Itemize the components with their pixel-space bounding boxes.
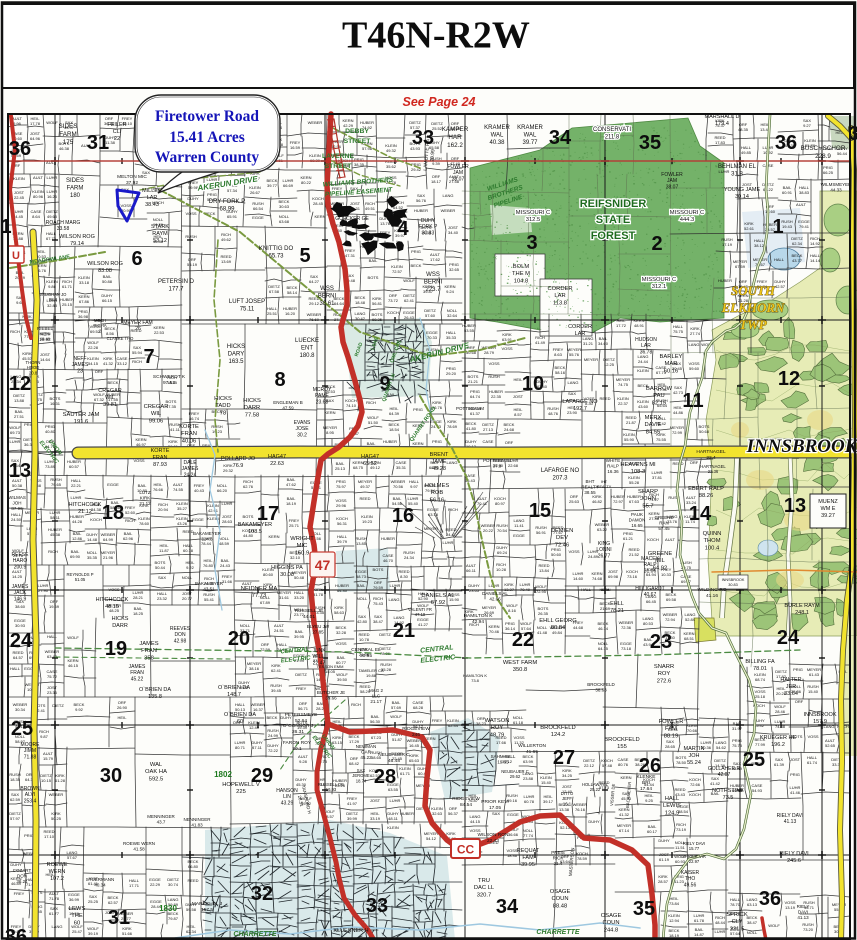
svg-text:LUFT JOSEP: LUFT JOSEP xyxy=(229,299,265,305)
svg-text:15.40: 15.40 xyxy=(808,689,819,694)
svg-text:57.98: 57.98 xyxy=(362,146,373,151)
svg-text:13: 13 xyxy=(784,495,806,517)
svg-text:8.57: 8.57 xyxy=(514,412,523,417)
svg-text:EGGE: EGGE xyxy=(107,482,119,487)
svg-text:HEIL: HEIL xyxy=(118,715,128,720)
svg-text:KLEIN: KLEIN xyxy=(13,176,25,181)
svg-text:75.75: 75.75 xyxy=(673,329,684,334)
svg-text:77.58: 77.58 xyxy=(245,413,260,419)
svg-text:74.55: 74.55 xyxy=(173,487,184,492)
svg-text:NEUBAUER C: NEUBAUER C xyxy=(378,752,410,758)
svg-text:68.28: 68.28 xyxy=(413,705,424,710)
svg-text:56.76: 56.76 xyxy=(416,198,427,203)
svg-text:100.4: 100.4 xyxy=(705,546,720,552)
svg-text:RIDGEVIEW: RIDGEVIEW xyxy=(452,796,480,802)
svg-text:41.13: 41.13 xyxy=(784,819,797,825)
svg-text:31.97: 31.97 xyxy=(732,726,743,731)
svg-text:POLLARD JO: POLLARD JO xyxy=(221,456,256,462)
svg-text:11.87: 11.87 xyxy=(159,548,169,553)
svg-text:73.8: 73.8 xyxy=(471,678,480,683)
svg-text:41.42: 41.42 xyxy=(710,781,721,786)
svg-text:WATSON: WATSON xyxy=(485,718,510,724)
svg-text:BARLEY: BARLEY xyxy=(660,354,683,360)
svg-text:82.15: 82.15 xyxy=(652,401,667,407)
svg-text:25.18: 25.18 xyxy=(755,694,766,699)
svg-text:BROCKFELD: BROCKFELD xyxy=(604,737,639,743)
svg-text:KOCH: KOCH xyxy=(647,537,659,542)
svg-text:REED: REED xyxy=(672,461,683,466)
svg-text:40.80: 40.80 xyxy=(45,429,56,434)
svg-text:34.25: 34.25 xyxy=(562,773,573,778)
svg-text:FOWLER: FOWLER xyxy=(659,719,684,725)
svg-text:25.71: 25.71 xyxy=(289,523,300,528)
svg-text:73.72: 73.72 xyxy=(388,298,399,303)
svg-text:25.15: 25.15 xyxy=(62,302,73,307)
svg-text:30.34: 30.34 xyxy=(15,707,26,712)
svg-text:80.97: 80.97 xyxy=(495,501,506,506)
svg-text:38.54: 38.54 xyxy=(678,809,689,814)
svg-text:DEV: DEV xyxy=(556,535,568,541)
svg-text:ROACH MARG: ROACH MARG xyxy=(46,220,81,226)
svg-text:27.74: 27.74 xyxy=(690,331,701,336)
svg-text:39.50: 39.50 xyxy=(337,677,348,682)
svg-text:26.67: 26.67 xyxy=(250,190,261,195)
svg-text:18: 18 xyxy=(102,502,124,524)
svg-text:39.77: 39.77 xyxy=(267,183,278,188)
svg-text:Firetower Road: Firetower Road xyxy=(155,108,259,125)
svg-text:25.47: 25.47 xyxy=(72,929,83,934)
svg-text:36.66: 36.66 xyxy=(508,832,519,837)
svg-text:192.7: 192.7 xyxy=(573,406,587,412)
svg-text:33.20: 33.20 xyxy=(294,595,305,600)
svg-text:BAIL: BAIL xyxy=(357,583,366,588)
svg-text:28: 28 xyxy=(374,766,396,788)
svg-text:244.8: 244.8 xyxy=(604,928,619,934)
svg-text:KNITTIG DO: KNITTIG DO xyxy=(259,246,294,252)
svg-text:JAME: JAME xyxy=(432,459,447,465)
svg-text:180.8: 180.8 xyxy=(299,353,315,359)
svg-text:28.65: 28.65 xyxy=(665,744,676,749)
svg-text:40.38: 40.38 xyxy=(489,140,505,146)
svg-text:52.65: 52.65 xyxy=(825,743,836,748)
svg-text:LLC: LLC xyxy=(372,694,381,699)
svg-text:64.15: 64.15 xyxy=(598,646,609,651)
svg-text:12.94: 12.94 xyxy=(669,918,680,923)
svg-text:TRU: TRU xyxy=(478,878,490,884)
svg-text:76.16: 76.16 xyxy=(575,807,586,812)
svg-text:HOPEWELL V: HOPEWELL V xyxy=(222,782,260,788)
svg-text:84.55: 84.55 xyxy=(646,430,661,436)
svg-text:57.48: 57.48 xyxy=(602,763,613,768)
svg-text:67.23: 67.23 xyxy=(371,735,382,740)
svg-text:WILMSMEYER: WILMSMEYER xyxy=(821,182,853,187)
svg-text:24.34: 24.34 xyxy=(404,555,415,560)
svg-text:56.30: 56.30 xyxy=(370,719,381,724)
svg-text:9.97: 9.97 xyxy=(410,484,419,489)
svg-text:74.68: 74.68 xyxy=(592,576,603,581)
svg-text:99.06: 99.06 xyxy=(149,419,164,425)
svg-text:62.96: 62.96 xyxy=(123,536,134,541)
svg-text:72.57: 72.57 xyxy=(392,269,403,274)
svg-text:41.27: 41.27 xyxy=(418,622,429,627)
svg-text:FOREST: FOREST xyxy=(591,230,636,242)
svg-text:68.22: 68.22 xyxy=(763,187,774,192)
svg-text:44.28: 44.28 xyxy=(72,519,83,524)
svg-text:25.51: 25.51 xyxy=(267,311,278,316)
svg-text:KLEIN: KLEIN xyxy=(387,825,399,830)
svg-text:BROCKFELD: BROCKFELD xyxy=(540,725,575,731)
svg-text:VOSS: VOSS xyxy=(488,361,499,366)
svg-text:162.2: 162.2 xyxy=(447,142,463,149)
svg-text:358: 358 xyxy=(144,656,154,662)
svg-text:LONNI: LONNI xyxy=(596,547,611,553)
svg-text:DUHY: DUHY xyxy=(10,862,22,867)
svg-text:ALVI: ALVI xyxy=(25,792,35,798)
svg-text:7: 7 xyxy=(143,346,154,368)
svg-text:KAISER: KAISER xyxy=(681,870,700,876)
svg-text:DIETZ: DIETZ xyxy=(52,703,64,708)
svg-text:AULT: AULT xyxy=(33,175,43,180)
svg-text:WEBER: WEBER xyxy=(308,120,323,125)
svg-text:16.26: 16.26 xyxy=(47,194,58,199)
svg-text:42.91: 42.91 xyxy=(208,508,219,513)
svg-text:MEYER: MEYER xyxy=(584,357,598,362)
svg-text:19.23: 19.23 xyxy=(362,519,373,524)
svg-text:73.16: 73.16 xyxy=(627,574,638,579)
svg-text:PREIS: PREIS xyxy=(551,850,565,855)
svg-text:35: 35 xyxy=(633,898,655,920)
svg-text:REIFSNIDER: REIFSNIDER xyxy=(580,198,647,210)
svg-text:LAR: LAR xyxy=(641,343,651,349)
svg-text:COUN: COUN xyxy=(551,896,568,902)
svg-text:33.64: 33.64 xyxy=(784,691,798,697)
svg-text:10: 10 xyxy=(522,373,544,395)
svg-text:RICH: RICH xyxy=(366,400,376,405)
svg-text:78.44: 78.44 xyxy=(201,541,212,546)
svg-text:39.19: 39.19 xyxy=(88,931,99,936)
svg-text:KORTE: KORTE xyxy=(179,424,199,430)
svg-text:50.48: 50.48 xyxy=(294,575,305,580)
svg-text:DALE: DALE xyxy=(183,460,197,466)
svg-text:49.32: 49.32 xyxy=(386,148,397,153)
svg-text:41.80: 41.80 xyxy=(466,426,477,431)
svg-text:ORF: ORF xyxy=(690,460,699,465)
svg-text:16.36: 16.36 xyxy=(607,469,619,474)
svg-text:FREY: FREY xyxy=(296,686,307,691)
svg-text:27.51: 27.51 xyxy=(14,414,25,419)
svg-text:POTTEBAUM: POTTEBAUM xyxy=(483,458,511,463)
svg-text:HALL: HALL xyxy=(10,666,21,671)
svg-text:GOECKER GE: GOECKER GE xyxy=(335,216,369,222)
svg-text:MEYER FAM: MEYER FAM xyxy=(123,320,152,326)
svg-text:19.88: 19.88 xyxy=(366,673,377,678)
svg-text:83.08: 83.08 xyxy=(98,268,112,274)
svg-text:DAMON: DAMON xyxy=(629,518,646,523)
svg-text:MISSOURI C: MISSOURI C xyxy=(642,277,676,283)
svg-text:RUSH: RUSH xyxy=(488,374,499,379)
svg-text:22.63: 22.63 xyxy=(270,461,284,467)
svg-text:62.34: 62.34 xyxy=(186,929,197,934)
svg-text:66.11: 66.11 xyxy=(466,568,476,573)
svg-text:61.71: 61.71 xyxy=(400,771,411,776)
svg-text:DANIELS AL: DANIELS AL xyxy=(482,591,508,596)
svg-text:51.66: 51.66 xyxy=(122,931,133,936)
svg-text:RIGHA: RIGHA xyxy=(93,323,106,328)
svg-text:17.66: 17.66 xyxy=(496,740,507,745)
svg-text:BOTS: BOTS xyxy=(243,514,254,519)
svg-text:64.57: 64.57 xyxy=(13,655,24,660)
svg-text:61.21: 61.21 xyxy=(623,536,634,541)
svg-text:STATE: STATE xyxy=(596,214,630,226)
svg-text:18.54: 18.54 xyxy=(389,427,400,432)
svg-text:32.83: 32.83 xyxy=(47,303,58,308)
svg-text:OSAGE: OSAGE xyxy=(601,913,622,919)
svg-text:27.85: 27.85 xyxy=(312,630,324,635)
svg-text:ROEWE WERN: ROEWE WERN xyxy=(123,841,155,846)
svg-text:69.98: 69.98 xyxy=(608,574,619,579)
svg-text:175: 175 xyxy=(63,139,74,146)
svg-text:22.12: 22.12 xyxy=(584,763,595,768)
svg-text:CENTRAL EL: CENTRAL EL xyxy=(351,647,381,653)
svg-text:48.59: 48.59 xyxy=(219,541,230,546)
svg-text:23.36: 23.36 xyxy=(47,690,58,695)
svg-text:RICH: RICH xyxy=(10,329,20,334)
svg-text:HUBER: HUBER xyxy=(414,208,428,213)
svg-text:FAM: FAM xyxy=(665,726,677,732)
svg-text:KLEIN: KLEIN xyxy=(637,368,649,373)
svg-text:49.62: 49.62 xyxy=(221,237,232,242)
svg-text:23: 23 xyxy=(77,369,83,375)
svg-text:10.33: 10.33 xyxy=(661,572,672,577)
svg-text:77.73: 77.73 xyxy=(252,593,267,599)
svg-text:18.35: 18.35 xyxy=(10,777,21,782)
svg-text:72.46: 72.46 xyxy=(555,543,570,549)
svg-text:21.12: 21.12 xyxy=(78,509,92,515)
svg-text:38.07: 38.07 xyxy=(666,185,679,191)
svg-text:46.14: 46.14 xyxy=(598,626,609,631)
svg-text:LUHR: LUHR xyxy=(443,540,454,545)
svg-text:49.51: 49.51 xyxy=(365,206,376,211)
svg-text:75.55: 75.55 xyxy=(656,437,667,442)
svg-text:24: 24 xyxy=(10,630,33,652)
svg-text:55.41: 55.41 xyxy=(204,597,215,602)
svg-text:25: 25 xyxy=(11,718,33,740)
svg-text:LUHR: LUHR xyxy=(390,798,401,803)
svg-text:248.1: 248.1 xyxy=(795,610,809,616)
svg-text:HALTER: HALTER xyxy=(780,677,801,683)
svg-text:BECK: BECK xyxy=(108,380,119,385)
svg-text:BARROW: BARROW xyxy=(646,386,673,392)
svg-text:51.05: 51.05 xyxy=(75,577,86,582)
svg-text:10.15: 10.15 xyxy=(41,778,52,783)
svg-text:WIL: WIL xyxy=(151,411,162,417)
svg-text:38.47: 38.47 xyxy=(747,920,758,925)
svg-text:61.18: 61.18 xyxy=(513,720,524,725)
svg-text:78.70: 78.70 xyxy=(730,902,741,907)
svg-text:23.68: 23.68 xyxy=(316,400,329,406)
svg-text:60: 60 xyxy=(237,719,243,725)
svg-text:61.39: 61.39 xyxy=(774,762,785,767)
svg-text:LAFARGE NO: LAFARGE NO xyxy=(541,468,580,474)
svg-text:BERNI: BERNI xyxy=(318,294,337,300)
svg-text:KRUEGER HE: KRUEGER HE xyxy=(760,735,797,741)
svg-text:76.80: 76.80 xyxy=(203,563,214,568)
svg-text:44.68: 44.68 xyxy=(573,625,584,630)
svg-text:33.12: 33.12 xyxy=(117,361,128,366)
svg-text:RIELY: RIELY xyxy=(797,904,810,909)
svg-text:35.62: 35.62 xyxy=(386,164,397,169)
svg-text:44.15: 44.15 xyxy=(470,819,481,824)
svg-text:STUERMANN: STUERMANN xyxy=(86,877,115,882)
svg-text:47.59: 47.59 xyxy=(282,406,294,411)
svg-text:LAR: LAR xyxy=(147,195,158,201)
svg-text:80.71: 80.71 xyxy=(235,745,246,750)
svg-text:32: 32 xyxy=(251,883,273,905)
svg-text:FARM: FARM xyxy=(67,186,84,192)
svg-text:49.85: 49.85 xyxy=(741,150,752,155)
svg-text:ROEWE: ROEWE xyxy=(47,862,68,868)
svg-text:6: 6 xyxy=(131,248,142,270)
svg-text:BOTS: BOTS xyxy=(368,275,379,280)
svg-text:15.05: 15.05 xyxy=(325,669,336,674)
svg-text:JACK: JACK xyxy=(14,590,27,596)
svg-text:42.07: 42.07 xyxy=(718,772,731,778)
svg-text:23.88: 23.88 xyxy=(523,776,534,781)
svg-text:DON: DON xyxy=(174,632,186,638)
svg-text:JAMES: JAMES xyxy=(129,664,146,670)
svg-text:WILMAS: WILMAS xyxy=(8,495,26,500)
svg-text:23.32: 23.32 xyxy=(157,596,168,601)
svg-text:KORTE: KORTE xyxy=(151,448,170,454)
svg-text:KRAMER: KRAMER xyxy=(517,125,543,131)
svg-text:WILLERTON: WILLERTON xyxy=(518,743,546,749)
svg-text:47: 47 xyxy=(315,557,331,573)
svg-text:SIDES: SIDES xyxy=(59,123,78,130)
svg-text:191.6: 191.6 xyxy=(74,419,89,425)
svg-text:WIL: WIL xyxy=(105,395,115,401)
svg-text:66.69: 66.69 xyxy=(283,183,294,188)
svg-text:70.54: 70.54 xyxy=(497,528,508,533)
svg-text:TWP: TWP xyxy=(739,317,768,332)
svg-text:14.60: 14.60 xyxy=(573,576,584,581)
svg-text:DARR: DARR xyxy=(244,405,260,411)
svg-text:BRI: BRI xyxy=(642,780,650,786)
svg-text:GOLLAHER R: GOLLAHER R xyxy=(708,766,741,772)
svg-text:HALL: HALL xyxy=(47,634,58,639)
svg-text:BROCKFELD: BROCKFELD xyxy=(587,682,615,687)
svg-text:HICKS: HICKS xyxy=(112,616,129,622)
svg-text:35.31: 35.31 xyxy=(396,465,407,470)
svg-text:62.57: 62.57 xyxy=(108,900,119,905)
svg-text:LUHR: LUHR xyxy=(222,501,233,506)
svg-text:KAMPER: KAMPER xyxy=(442,126,469,133)
svg-text:THO: THO xyxy=(685,876,696,882)
svg-text:14.92: 14.92 xyxy=(810,241,821,246)
svg-text:WSS: WSS xyxy=(320,286,334,292)
svg-text:75.72: 75.72 xyxy=(47,674,58,679)
svg-text:57.34: 57.34 xyxy=(227,188,238,193)
svg-text:DANIELS AL: DANIELS AL xyxy=(421,593,455,599)
svg-text:MERX: MERX xyxy=(645,415,662,421)
svg-text:HICKS: HICKS xyxy=(243,398,261,404)
svg-text:63.68: 63.68 xyxy=(279,219,290,224)
svg-text:207.3: 207.3 xyxy=(552,476,568,482)
svg-text:FAM: FAM xyxy=(522,855,534,861)
svg-text:75.73: 75.73 xyxy=(732,743,743,748)
svg-text:25: 25 xyxy=(743,749,765,771)
svg-text:RAYM: RAYM xyxy=(152,231,168,237)
svg-text:WEST FARM: WEST FARM xyxy=(503,660,538,666)
svg-text:BROWN: BROWN xyxy=(20,786,40,792)
svg-text:79.87: 79.87 xyxy=(168,916,179,921)
svg-text:33: 33 xyxy=(366,895,388,917)
svg-text:58.63: 58.63 xyxy=(334,610,345,615)
svg-text:EGGE: EGGE xyxy=(513,533,525,538)
svg-text:PETERSIN D: PETERSIN D xyxy=(158,279,195,285)
svg-text:60: 60 xyxy=(74,921,80,927)
svg-text:HUBER: HUBER xyxy=(383,439,397,444)
svg-text:67.58: 67.58 xyxy=(269,289,280,294)
svg-text:SAX: SAX xyxy=(568,391,576,396)
svg-text:66.20: 66.20 xyxy=(217,488,228,493)
svg-text:30.2: 30.2 xyxy=(297,433,307,439)
svg-text:WERN: WERN xyxy=(49,869,66,875)
svg-text:KOCH: KOCH xyxy=(689,792,701,797)
svg-text:AULT: AULT xyxy=(796,202,806,207)
svg-text:46.48: 46.48 xyxy=(388,758,400,764)
svg-text:NOTHSTINE: NOTHSTINE xyxy=(712,788,744,794)
svg-text:KEN: KEN xyxy=(40,332,49,337)
svg-text:HUBER: HUBER xyxy=(381,536,395,541)
svg-text:27.13: 27.13 xyxy=(483,427,494,432)
svg-text:65.73: 65.73 xyxy=(268,254,284,260)
svg-text:73.89: 73.89 xyxy=(45,464,56,469)
svg-text:RIEBEL: RIEBEL xyxy=(37,326,54,331)
svg-text:29.12: 29.12 xyxy=(309,301,320,306)
svg-text:DUHY: DUHY xyxy=(421,218,436,224)
svg-text:71.78: 71.78 xyxy=(49,896,60,901)
svg-text:CLI: CLI xyxy=(113,129,122,135)
svg-text:JEROME: JEROME xyxy=(352,773,370,778)
svg-text:39.17: 39.17 xyxy=(543,799,554,804)
svg-text:47.11: 47.11 xyxy=(252,745,262,750)
svg-text:JAM: JAM xyxy=(667,178,677,184)
svg-text:47.62: 47.62 xyxy=(286,482,297,487)
svg-text:32.28: 32.28 xyxy=(336,630,347,635)
svg-text:13.84: 13.84 xyxy=(539,568,550,573)
svg-text:ENT: ENT xyxy=(301,346,313,352)
svg-text:42.57: 42.57 xyxy=(775,284,786,289)
svg-text:41.65: 41.65 xyxy=(526,749,538,755)
svg-text:56.71: 56.71 xyxy=(298,706,309,711)
svg-text:47.19: 47.19 xyxy=(415,612,426,617)
svg-text:19.65: 19.65 xyxy=(497,760,509,765)
svg-text:39.77: 39.77 xyxy=(522,140,538,146)
svg-text:73.18: 73.18 xyxy=(621,646,632,651)
svg-text:80.53: 80.53 xyxy=(643,621,654,626)
svg-text:STARK: STARK xyxy=(151,224,169,230)
svg-text:57.67: 57.67 xyxy=(67,855,78,860)
svg-text:43.29: 43.29 xyxy=(281,801,294,807)
svg-text:DEMIEN: DEMIEN xyxy=(551,528,574,534)
svg-text:78.60: 78.60 xyxy=(139,521,150,526)
svg-text:LANG: LANG xyxy=(568,380,579,385)
svg-text:52.61: 52.61 xyxy=(744,226,755,231)
svg-text:CHARRETTE: CHARRETTE xyxy=(536,929,579,936)
svg-text:VOSS: VOSS xyxy=(185,211,196,216)
svg-text:40.67: 40.67 xyxy=(644,592,657,598)
svg-text:88.26: 88.26 xyxy=(699,493,714,499)
